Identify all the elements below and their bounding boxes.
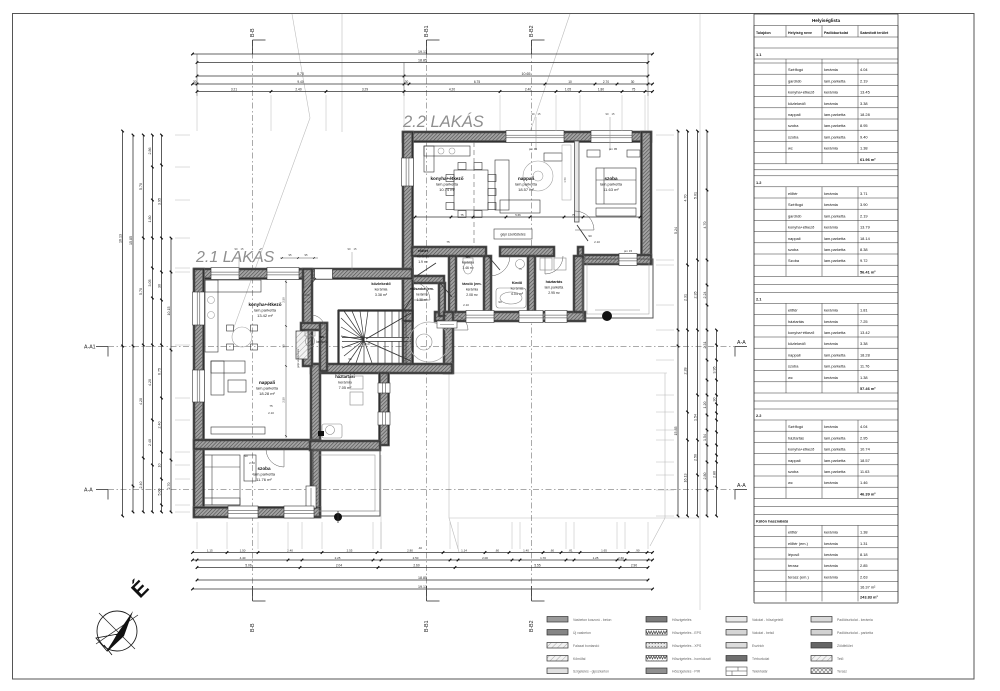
- svg-text:18.57: 18.57: [860, 458, 870, 463]
- svg-text:75: 75: [443, 314, 447, 318]
- svg-text:1.65: 1.65: [601, 548, 607, 552]
- svg-text:2.35: 2.35: [693, 292, 697, 299]
- svg-text:2.70: 2.70: [603, 80, 609, 84]
- svg-text:3.38: 3.38: [860, 101, 868, 106]
- svg-text:Vakolat - belső: Vakolat - belső: [752, 631, 774, 635]
- svg-text:Vakolat - hőszigetelő: Vakolat - hőszigetelő: [752, 618, 783, 622]
- svg-text:10.74 m²: 10.74 m²: [439, 187, 455, 192]
- svg-text:30: 30: [405, 80, 409, 84]
- svg-text:15: 15: [612, 112, 615, 116]
- svg-text:2.10: 2.10: [304, 300, 310, 304]
- svg-text:2.2 LAKÁS: 2.2 LAKÁS: [402, 112, 484, 131]
- svg-text:Szélfogó: Szélfogó: [788, 424, 803, 429]
- svg-text:2.10: 2.10: [463, 303, 469, 307]
- svg-text:kerámia: kerámia: [824, 146, 839, 151]
- svg-text:75: 75: [269, 404, 273, 408]
- svg-text:75: 75: [518, 267, 522, 271]
- svg-text:kerámia: kerámia: [824, 424, 839, 429]
- svg-text:3.95: 3.95: [712, 367, 716, 374]
- svg-text:1.20: 1.20: [703, 402, 707, 409]
- svg-text:100: 100: [304, 293, 309, 297]
- svg-text:2.95: 2.95: [860, 435, 868, 440]
- svg-text:2.50: 2.50: [282, 297, 286, 303]
- svg-text:2.80: 2.80: [703, 473, 707, 480]
- svg-text:2.19: 2.19: [860, 213, 868, 218]
- svg-text:nappali: nappali: [788, 352, 801, 357]
- svg-text:szoba: szoba: [788, 364, 799, 369]
- svg-text:Helyiséglista: Helyiséglista: [812, 18, 841, 23]
- svg-text:B-B1: B-B1: [424, 25, 430, 37]
- svg-text:lam.parketta: lam.parketta: [600, 182, 623, 187]
- svg-text:100: 100: [359, 335, 364, 339]
- svg-text:wc: wc: [788, 146, 793, 151]
- svg-text:2.50: 2.50: [249, 461, 255, 465]
- svg-text:30: 30: [193, 80, 197, 84]
- svg-text:lam.parketta: lam.parketta: [824, 236, 846, 241]
- svg-text:gépi szellőztetés: gépi szellőztetés: [296, 348, 300, 368]
- svg-text:Padlóburkolat - kerámia: Padlóburkolat - kerámia: [837, 618, 873, 622]
- svg-text:kerámia: kerámia: [824, 480, 839, 485]
- svg-text:18.28: 18.28: [860, 352, 870, 357]
- svg-text:kerámia: kerámia: [824, 90, 839, 95]
- svg-text:1.54: 1.54: [703, 434, 707, 441]
- svg-text:15.85: 15.85: [674, 427, 678, 436]
- svg-text:gépi szellőztetés: gépi szellőztetés: [500, 233, 525, 237]
- svg-text:Helyiség neve: Helyiség neve: [788, 31, 812, 35]
- svg-text:B-B: B-B: [250, 623, 256, 632]
- svg-text:13.45: 13.45: [860, 90, 870, 95]
- svg-text:4.20: 4.20: [148, 379, 152, 386]
- svg-text:szoba: szoba: [604, 176, 617, 181]
- svg-text:2.86: 2.86: [148, 148, 152, 155]
- svg-text:kerámia: kerámia: [466, 288, 478, 292]
- svg-text:19.13: 19.13: [418, 50, 427, 54]
- svg-text:közlekedő: közlekedő: [371, 281, 391, 286]
- svg-text:szoba: szoba: [788, 247, 799, 252]
- svg-text:5.24: 5.24: [674, 227, 678, 234]
- svg-text:90: 90: [235, 247, 238, 251]
- svg-text:1.38: 1.38: [860, 146, 868, 151]
- svg-text:3.71: 3.71: [860, 191, 868, 196]
- svg-text:1.70: 1.70: [540, 556, 546, 560]
- svg-text:lam.parketta: lam.parketta: [824, 258, 846, 263]
- svg-text:18.14: 18.14: [860, 236, 871, 241]
- svg-text:háztartás: háztartás: [546, 280, 563, 284]
- svg-text:kerámia: kerámia: [462, 261, 474, 265]
- svg-text:Új vasbeton: Új vasbeton: [573, 630, 591, 635]
- svg-text:2.31: 2.31: [683, 294, 687, 301]
- svg-text:kerámia: kerámia: [824, 541, 839, 546]
- svg-text:2.00: 2.00: [482, 556, 488, 560]
- svg-text:előszoba (em.: előszoba (em.: [410, 287, 434, 291]
- svg-text:16.13: 16.13: [118, 234, 122, 243]
- svg-text:2.08 m²: 2.08 m²: [466, 293, 478, 297]
- svg-text:4.04: 4.04: [860, 67, 868, 72]
- svg-text:3.90: 3.90: [860, 202, 868, 207]
- svg-text:B-B2: B-B2: [529, 620, 535, 632]
- svg-text:kerámia: kerámia: [511, 287, 524, 291]
- svg-text:fürdő: fürdő: [512, 280, 523, 285]
- svg-text:szoba: szoba: [788, 134, 799, 139]
- svg-text:előtér (em.): előtér (em.): [788, 541, 809, 546]
- svg-text:2.2: 2.2: [756, 413, 762, 418]
- svg-text:Szélfogó: Szélfogó: [788, 67, 803, 72]
- svg-text:B-B: B-B: [250, 28, 256, 37]
- svg-text:1.81: 1.81: [860, 308, 868, 313]
- svg-text:nappali: nappali: [788, 236, 801, 241]
- svg-text:A-A1: A-A1: [84, 345, 96, 351]
- svg-text:lam.parketta: lam.parketta: [824, 458, 846, 463]
- svg-text:2.25: 2.25: [335, 556, 341, 560]
- svg-text:konyha+étkező: konyha+étkező: [788, 447, 815, 452]
- svg-text:10: 10: [157, 464, 161, 468]
- svg-text:Hőszigetelés - PIR: Hőszigetelés - PIR: [672, 670, 701, 674]
- svg-text:konyha+étkező: konyha+étkező: [430, 176, 463, 181]
- svg-text:9.40: 9.40: [297, 80, 303, 84]
- svg-text:wc: wc: [788, 480, 793, 485]
- svg-text:Szoba: Szoba: [788, 258, 800, 263]
- svg-text:Padlóburkolat: Padlóburkolat: [824, 31, 849, 35]
- svg-text:19.13: 19.13: [418, 585, 427, 589]
- svg-text:5.70: 5.70: [139, 288, 143, 295]
- svg-text:lam.parketta: lam.parketta: [824, 213, 846, 218]
- svg-text:30: 30: [631, 80, 635, 84]
- svg-text:háztartás: háztartás: [788, 319, 804, 324]
- svg-text:kerámia: kerámia: [824, 191, 839, 196]
- svg-text:2.10: 2.10: [594, 240, 600, 244]
- svg-text:lam.parketta: lam.parketta: [436, 182, 459, 187]
- svg-text:nappali: nappali: [518, 176, 534, 181]
- svg-text:1.31: 1.31: [860, 541, 868, 546]
- svg-text:pm 95: pm 95: [529, 147, 538, 151]
- svg-text:előtér: előtér: [788, 191, 798, 196]
- svg-text:2.10: 2.10: [268, 411, 274, 415]
- svg-text:Telekhatár: Telekhatár: [752, 670, 769, 674]
- svg-text:lam.parketta: lam.parketta: [256, 386, 279, 391]
- svg-text:Hőszigetelés - EPS: Hőszigetelés - EPS: [672, 631, 702, 635]
- svg-text:3.29: 3.29: [362, 87, 368, 91]
- svg-text:szoba: szoba: [788, 123, 799, 128]
- svg-text:kerámia: kerámia: [824, 225, 839, 230]
- svg-text:kerámia: kerámia: [824, 552, 839, 557]
- svg-text:13.79: 13.79: [860, 225, 870, 230]
- svg-text:Esztrich: Esztrich: [752, 644, 764, 648]
- svg-text:1.9 m²: 1.9 m²: [418, 260, 428, 264]
- svg-text:5.00: 5.00: [157, 489, 161, 496]
- svg-text:Kőműfal: Kőműfal: [573, 657, 586, 661]
- svg-text:kerámia: kerámia: [417, 255, 429, 259]
- svg-text:kerámia: kerámia: [338, 381, 352, 385]
- svg-text:kerámia: kerámia: [824, 563, 839, 568]
- svg-text:2.63: 2.63: [860, 574, 868, 579]
- svg-text:2.40: 2.40: [157, 422, 161, 429]
- svg-text:90: 90: [532, 112, 535, 116]
- svg-text:nappali: nappali: [259, 380, 275, 385]
- svg-text:Tető: Tető: [837, 657, 844, 661]
- svg-text:kerámia: kerámia: [824, 530, 839, 535]
- svg-text:konyha+étkező: konyha+étkező: [788, 330, 815, 335]
- svg-text:Hőszigetelés - XPS: Hőszigetelés - XPS: [672, 644, 702, 648]
- svg-text:6.75: 6.75: [157, 368, 161, 375]
- svg-text:10.74: 10.74: [860, 447, 871, 452]
- svg-text:2.04: 2.04: [336, 563, 342, 567]
- svg-text:.40: .40: [418, 546, 423, 550]
- svg-text:kerámia: kerámia: [824, 319, 839, 324]
- svg-text:kerámia: kerámia: [824, 341, 839, 346]
- svg-text:Térburkolat: Térburkolat: [752, 657, 769, 661]
- svg-text:46.39 m²: 46.39 m²: [860, 491, 876, 496]
- svg-text:11.63: 11.63: [860, 469, 869, 474]
- svg-text:közlekedő: közlekedő: [788, 101, 806, 106]
- svg-text:1.80: 1.80: [598, 87, 604, 91]
- svg-text:B-B1: B-B1: [424, 620, 430, 632]
- svg-text:lam.parketta: lam.parketta: [254, 308, 277, 313]
- svg-text:5.66: 5.66: [515, 213, 521, 217]
- svg-text:Zöldfelület: Zöldfelület: [837, 644, 853, 648]
- svg-text:6.75: 6.75: [474, 80, 480, 84]
- svg-text:2.1: 2.1: [756, 296, 762, 301]
- svg-text:18.28 m²: 18.28 m²: [259, 391, 275, 396]
- svg-text:4.70: 4.70: [683, 195, 687, 202]
- svg-text:10.15: 10.15: [167, 307, 171, 316]
- svg-text:90: 90: [606, 112, 609, 116]
- svg-text:90: 90: [588, 234, 592, 238]
- svg-text:10.65: 10.65: [522, 72, 531, 76]
- svg-text:2.31: 2.31: [703, 342, 707, 349]
- svg-text:konyha+étkező: konyha+étkező: [248, 302, 281, 307]
- svg-text:Szélfogó: Szélfogó: [788, 202, 803, 207]
- svg-text:Vasbeton koszorú - beton: Vasbeton koszorú - beton: [573, 618, 612, 622]
- svg-text:lam.parketta: lam.parketta: [545, 286, 564, 290]
- svg-text:9.40: 9.40: [860, 134, 868, 139]
- svg-text:95: 95: [305, 253, 308, 257]
- svg-text:.60: .60: [550, 548, 555, 552]
- svg-text:57.46 m²: 57.46 m²: [860, 386, 876, 391]
- svg-text:lam.parketta: lam.parketta: [824, 469, 846, 474]
- svg-text:lam.parketta: lam.parketta: [824, 447, 846, 452]
- svg-text:1.54: 1.54: [693, 414, 697, 421]
- svg-text:7.25: 7.25: [860, 319, 868, 324]
- svg-text:wc: wc: [318, 335, 324, 339]
- svg-text:2.95 m²: 2.95 m²: [548, 291, 560, 295]
- svg-text:Padlóburkolat - parketta: Padlóburkolat - parketta: [837, 631, 873, 635]
- svg-text:előtér: előtér: [418, 249, 429, 253]
- svg-text:5.06: 5.06: [245, 563, 251, 567]
- svg-text:A-A: A-A: [84, 488, 93, 494]
- svg-text:1.2: 1.2: [756, 180, 762, 185]
- svg-text:10: 10: [568, 80, 572, 84]
- svg-text:Falazat bontandó: Falazat bontandó: [573, 644, 599, 648]
- svg-text:75: 75: [446, 240, 450, 244]
- svg-text:15: 15: [241, 247, 244, 251]
- svg-text:2.50: 2.50: [282, 397, 286, 403]
- svg-text:kerámia: kerámia: [824, 101, 839, 106]
- svg-text:nappali: nappali: [788, 458, 801, 463]
- svg-text:Hőszigetelés: Hőszigetelés: [672, 618, 692, 622]
- svg-text:lam.parketta: lam.parketta: [515, 182, 538, 187]
- svg-text:Terasz: Terasz: [837, 670, 847, 674]
- svg-text:18.57 m²: 18.57 m²: [518, 187, 534, 192]
- svg-text:nappali: nappali: [788, 112, 801, 117]
- svg-text:16.13: 16.13: [683, 474, 687, 483]
- svg-text:2.19: 2.19: [860, 78, 868, 83]
- svg-text:1.14: 1.14: [461, 548, 467, 552]
- svg-text:wc: wc: [464, 255, 470, 259]
- svg-text:5.01: 5.01: [693, 192, 697, 199]
- svg-text:75: 75: [632, 87, 636, 91]
- svg-text:4.04: 4.04: [860, 424, 868, 429]
- svg-text:13.42: 13.42: [860, 330, 870, 335]
- svg-text:2.80: 2.80: [407, 548, 413, 552]
- svg-text:háztartási: háztartási: [335, 374, 355, 379]
- svg-text:B-B2: B-B2: [529, 25, 535, 37]
- svg-text:gardrób: gardrób: [788, 78, 801, 83]
- svg-text:konyha+étkező: konyha+étkező: [788, 90, 815, 95]
- svg-text:18.85: 18.85: [418, 58, 427, 62]
- svg-text:18.85: 18.85: [418, 576, 427, 580]
- svg-text:szoba: szoba: [257, 466, 270, 471]
- svg-text:1.05: 1.05: [565, 87, 571, 91]
- svg-text:2.50: 2.50: [693, 454, 697, 461]
- svg-text:előtér: előtér: [788, 308, 798, 313]
- svg-text:A-A: A-A: [737, 483, 746, 489]
- svg-text:61.96 m²: 61.96 m²: [860, 157, 876, 162]
- svg-text:1.38: 1.38: [860, 530, 868, 535]
- svg-text:Külön használatú: Külön használatú: [756, 518, 789, 523]
- svg-text:lam.parketta: lam.parketta: [824, 78, 846, 83]
- svg-text:90: 90: [348, 357, 352, 361]
- svg-text:1.40: 1.40: [523, 548, 529, 552]
- svg-text:2.40: 2.40: [525, 87, 531, 91]
- svg-text:243.83 m²: 243.83 m²: [860, 594, 878, 599]
- svg-text:kerámia: kerámia: [316, 340, 328, 344]
- svg-text:lam.parketta: lam.parketta: [824, 134, 846, 139]
- svg-text:kerámia: kerámia: [824, 574, 839, 579]
- svg-text:3.95: 3.95: [157, 198, 161, 205]
- svg-text:15: 15: [354, 247, 357, 251]
- svg-text:56.41 m²: 56.41 m²: [860, 269, 876, 274]
- svg-text:lam.parketta: lam.parketta: [824, 247, 846, 252]
- svg-text:tároló (em.: tároló (em.: [462, 282, 481, 286]
- svg-text:3.21: 3.21: [231, 87, 237, 91]
- svg-text:2.70: 2.70: [167, 483, 171, 490]
- svg-text:háztartás: háztartás: [788, 435, 804, 440]
- svg-text:2.85: 2.85: [860, 563, 868, 568]
- svg-text:2.40: 2.40: [139, 482, 143, 489]
- svg-text:gardrób: gardrób: [788, 213, 801, 218]
- svg-text:75: 75: [572, 213, 576, 217]
- svg-text:pm 95: pm 95: [609, 147, 618, 151]
- svg-text:3.05: 3.05: [148, 280, 152, 287]
- svg-text:75: 75: [460, 213, 464, 217]
- svg-text:30: 30: [712, 398, 716, 402]
- svg-text:30: 30: [157, 284, 161, 288]
- svg-text:Szigetelés - gipszkarton: Szigetelés - gipszkarton: [573, 670, 609, 674]
- svg-text:8.70: 8.70: [297, 72, 304, 76]
- svg-text:közlekedő: közlekedő: [788, 341, 806, 346]
- svg-text:előtér: előtér: [788, 530, 798, 535]
- svg-text:90: 90: [282, 344, 286, 347]
- svg-text:.90: .90: [635, 548, 640, 552]
- svg-text:Tulajdon: Tulajdon: [756, 31, 771, 35]
- svg-text:2.60: 2.60: [413, 563, 419, 567]
- svg-text:4.40: 4.40: [240, 556, 246, 560]
- svg-text:15: 15: [538, 112, 541, 116]
- svg-text:lam.parketta: lam.parketta: [253, 472, 276, 477]
- svg-text:1.15: 1.15: [207, 548, 213, 552]
- svg-text:Hőszigetelés - homlokzati: Hőszigetelés - homlokzati: [672, 657, 711, 661]
- svg-text:4.20: 4.20: [139, 398, 143, 405]
- svg-text:1.1: 1.1: [756, 52, 762, 57]
- svg-text:2.90: 2.90: [631, 563, 637, 567]
- svg-text:11.76: 11.76: [860, 364, 869, 369]
- svg-text:8.18: 8.18: [860, 552, 868, 557]
- svg-text:terasz (em.): terasz (em.): [788, 574, 809, 579]
- svg-text:Számított terület: Számított terület: [860, 31, 889, 35]
- svg-text:A-A: A-A: [737, 340, 746, 346]
- svg-text:16.37 m²: 16.37 m²: [860, 584, 876, 589]
- svg-text:lam.parketta: lam.parketta: [824, 352, 846, 357]
- svg-text:lam.parketta: lam.parketta: [824, 435, 846, 440]
- svg-text:1.38: 1.38: [860, 375, 868, 380]
- svg-text:15.85: 15.85: [129, 236, 133, 245]
- svg-text:pm 15: pm 15: [624, 249, 633, 253]
- svg-text:kerámia: kerámia: [824, 375, 839, 380]
- svg-text:lam.parketta: lam.parketta: [824, 112, 846, 117]
- svg-text:lépcső: lépcső: [788, 552, 800, 557]
- svg-text:4.70: 4.70: [703, 222, 707, 229]
- svg-text:2.80: 2.80: [712, 471, 716, 478]
- svg-text:2.60: 2.60: [618, 556, 624, 560]
- svg-text:1.25: 1.25: [593, 556, 599, 560]
- svg-text:kerámia: kerámia: [824, 202, 839, 207]
- svg-text:3.38 m²: 3.38 m²: [375, 293, 388, 297]
- svg-text:13.42 m²: 13.42 m²: [257, 313, 273, 318]
- svg-text:90: 90: [244, 454, 248, 458]
- svg-text:11.76 m²: 11.76 m²: [256, 477, 272, 482]
- svg-text:konyha+étkező: konyha+étkező: [788, 225, 815, 230]
- svg-text:2.55: 2.55: [347, 548, 353, 552]
- svg-text:1.46: 1.46: [860, 480, 868, 485]
- svg-text:11.63 m²: 11.63 m²: [603, 187, 619, 192]
- svg-text:lam.parketta: lam.parketta: [824, 364, 846, 369]
- svg-text:kerámia: kerámia: [824, 67, 839, 72]
- svg-text:4.04 m²: 4.04 m²: [511, 292, 524, 296]
- svg-text:95: 95: [289, 253, 292, 257]
- svg-text:4.20: 4.20: [449, 87, 455, 91]
- svg-text:terasz: terasz: [788, 563, 799, 568]
- svg-text:8.95: 8.95: [860, 123, 868, 128]
- svg-text:5.55: 5.55: [534, 563, 540, 567]
- svg-text:1.50: 1.50: [240, 548, 246, 552]
- svg-text:8.38: 8.38: [860, 247, 868, 252]
- svg-text:1.80: 1.80: [148, 216, 152, 223]
- svg-text:2.40: 2.40: [295, 87, 301, 91]
- svg-text:1.50: 1.50: [563, 177, 567, 183]
- svg-text:szoba: szoba: [788, 469, 799, 474]
- svg-text:kerámia: kerámia: [375, 288, 388, 292]
- svg-text:9.72: 9.72: [860, 258, 868, 263]
- svg-text:2.50: 2.50: [413, 556, 419, 560]
- svg-text:2.24: 2.24: [703, 292, 707, 299]
- svg-text:lam.parketta: lam.parketta: [824, 123, 846, 128]
- svg-text:2.28: 2.28: [683, 368, 687, 375]
- svg-text:.60: .60: [495, 548, 500, 552]
- svg-text:wc: wc: [788, 375, 793, 380]
- svg-text:kerámia: kerámia: [416, 293, 428, 297]
- svg-text:3.38: 3.38: [860, 341, 868, 346]
- svg-text:2.40: 2.40: [148, 439, 152, 446]
